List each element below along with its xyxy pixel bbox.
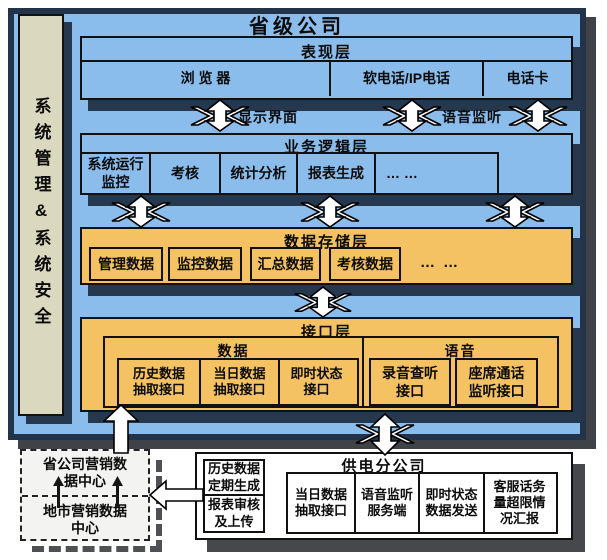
- report-upload-bottom: 报表审核 及上传: [205, 496, 263, 531]
- monitor-data-box: 监控数据: [168, 247, 242, 281]
- left-arrow-icon: [149, 477, 204, 513]
- branch-cells-strip: 当日数据 抽取接口 语音监听 服务端 即时状态 数据发送 客服话务 量超限情 况…: [286, 472, 558, 534]
- history-extract-cell: 历史数据 抽取接口: [119, 360, 199, 404]
- branch-status-send-cell: 即时状态 数据发送: [418, 474, 483, 532]
- sidebar-label: 系统管理&系统安全: [29, 97, 54, 333]
- presentation-layer: 表现层 浏 览 器 软电话/IP电话 电话卡: [80, 36, 573, 100]
- small-up-arrow-icon: [111, 476, 124, 508]
- city-marketing-label: 地市营销数据 中心: [22, 497, 148, 543]
- architecture-diagram: 省级公司 系统管理&系统安全 表现层 浏 览 器 软电话/IP电话 电话卡 显示…: [0, 0, 607, 560]
- updown-arrow-icon: [380, 99, 444, 132]
- report-generation-cell: 报表生成: [296, 154, 374, 193]
- report-upload-top: 历史数据 定期生成: [205, 461, 263, 496]
- system-monitor-cell: 系统运行 监控: [82, 154, 149, 193]
- branch-daily-extract-cell: 当日数据 抽取接口: [288, 474, 354, 532]
- branch-voice-server-cell: 语音监听 服务端: [354, 474, 418, 532]
- realtime-status-cell: 即时状态 接口: [278, 360, 353, 404]
- management-data-box: 管理数据: [89, 247, 163, 281]
- updown-arrow-icon: [298, 195, 362, 228]
- softphone-cell: 软电话/IP电话: [329, 62, 482, 96]
- business-cells-strip: 系统运行 监控 考核 统计分析 报表生成 … …: [80, 152, 499, 195]
- updown-arrow-icon: [506, 99, 570, 132]
- updown-arrow-icon: [109, 195, 173, 228]
- voice-monitor-label: 语音监听: [442, 107, 502, 127]
- updown-arrow-icon: [188, 99, 252, 132]
- statistics-cell: 统计分析: [219, 154, 296, 193]
- small-up-arrow-icon: [52, 476, 65, 508]
- updown-arrow-icon: [483, 195, 547, 228]
- updown-arrow-icon: [291, 286, 355, 318]
- summary-data-box: 汇总数据: [250, 247, 321, 281]
- assessment-data-box: 考核数据: [329, 247, 401, 281]
- presentation-layer-title: 表现层: [82, 38, 571, 62]
- storage-ellipsis: … …: [420, 254, 460, 271]
- report-upload-box: 历史数据 定期生成 报表审核 及上传: [203, 459, 265, 533]
- page-title: 省级公司: [8, 10, 586, 39]
- recording-listen-box: 录音查听 接口: [369, 358, 451, 406]
- phonecard-cell: 电话卡: [482, 62, 571, 96]
- daily-extract-cell: 当日数据 抽取接口: [199, 360, 278, 404]
- up-arrow-icon: [103, 404, 139, 454]
- sidebar-system-management: 系统管理&系统安全: [18, 14, 64, 416]
- browser-cell: 浏 览 器: [82, 62, 329, 96]
- assessment-cell: 考核: [149, 154, 219, 193]
- branch-traffic-report-cell: 客服话务 量超限情 况汇报: [483, 474, 554, 532]
- data-interface-cells: 历史数据 抽取接口 当日数据 抽取接口 即时状态 接口: [117, 358, 359, 406]
- business-ellipsis: … …: [374, 154, 497, 193]
- updown-arrow-icon: [353, 413, 417, 456]
- agent-monitor-box: 座席通话 监听接口: [455, 358, 538, 406]
- provincial-marketing-label: 省公司营销数 据中心: [22, 451, 148, 497]
- business-layer-title: 业务逻辑层: [82, 135, 571, 152]
- marketing-center-box: 省公司营销数 据中心 地市营销数据 中心: [20, 449, 150, 541]
